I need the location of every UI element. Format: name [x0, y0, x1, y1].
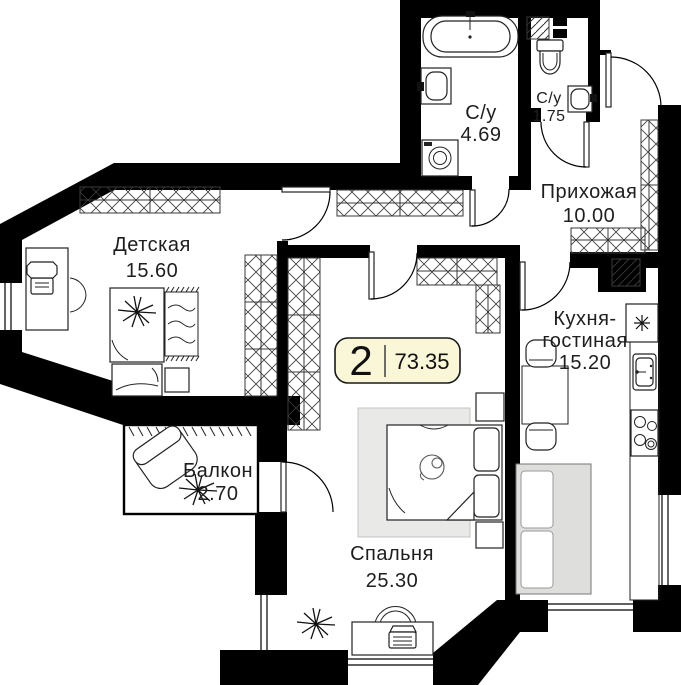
svg-text:15.60: 15.60 [126, 260, 179, 282]
badge-rooms-count: 2 [349, 337, 372, 384]
svg-text:4.69: 4.69 [461, 124, 502, 146]
vent-shaft-bathroom [527, 17, 567, 39]
svg-text:Кухня-: Кухня- [553, 308, 616, 330]
svg-text:С/у: С/у [465, 102, 497, 124]
svg-text:Спальня: Спальня [350, 543, 434, 565]
svg-text:Детская: Детская [113, 234, 191, 256]
room-label-bathroom: С/у 4.69 [461, 102, 502, 146]
door-entrance [606, 53, 661, 107]
bathroom-sink [417, 68, 451, 104]
bathtub [423, 11, 518, 57]
svg-text:2.70: 2.70 [198, 483, 239, 505]
stove [631, 410, 658, 456]
room-label-bedroom: Спальня 25.30 [350, 543, 434, 592]
room-label-wc: С/у 1.75 [532, 90, 565, 125]
sofa [516, 464, 591, 594]
plant-bedroom [297, 608, 335, 639]
wardrobe-bedroom-column [288, 258, 320, 430]
nightstand-bottom [476, 522, 503, 548]
door-wc [541, 122, 589, 167]
bedroom-desk [352, 607, 433, 655]
kitchen-sink [633, 354, 656, 390]
room-label-children: Детская 15.60 [113, 234, 191, 282]
svg-text:15.20: 15.20 [559, 352, 612, 374]
svg-text:С/у: С/у [536, 90, 562, 107]
apartment-badge: 2 73.35 [335, 337, 460, 384]
toilet [537, 40, 563, 74]
door-children [282, 187, 330, 240]
double-bed [387, 425, 502, 520]
children-side-table [165, 368, 189, 392]
cat [420, 455, 444, 480]
door-bathroom [470, 189, 509, 226]
vent-shaft-kitchen [612, 259, 640, 286]
door-bedroom [369, 252, 417, 299]
floor-plan: Детская 15.60 Балкон 2.70 Спальня 25.30 … [0, 0, 681, 685]
window-kitchen-right [658, 495, 681, 585]
children-bed [110, 288, 164, 396]
room-label-kitchen: Кухня- гостиная 15.20 [542, 308, 627, 374]
wardrobe-children-top [80, 187, 220, 213]
window-bedroom-bottom [348, 653, 433, 685]
fridge-icon [626, 304, 658, 342]
chair-bottom [526, 423, 556, 450]
svg-text:Балкон: Балкон [183, 460, 253, 482]
door-kitchen [520, 262, 570, 310]
door-balcony [281, 462, 333, 512]
window-bedroom-left [255, 595, 287, 650]
wardrobe-children-column [245, 255, 277, 396]
wardrobe-hallway-right [641, 120, 658, 250]
room-label-hallway: Прихожая 10.00 [541, 181, 638, 227]
washing-machine [422, 140, 458, 176]
dining-table [522, 366, 568, 424]
wardrobe-hallway-bottom [571, 228, 645, 253]
badge-total-area: 73.35 [394, 349, 449, 374]
wardrobe-bedroom-top [417, 258, 497, 285]
svg-text:Прихожая: Прихожая [541, 181, 638, 203]
children-rug [165, 287, 199, 361]
wardrobe-corridor-top [337, 190, 463, 216]
svg-text:1.75: 1.75 [532, 108, 565, 125]
wardrobe-bedroom-right [476, 285, 500, 333]
nightstand-top [476, 393, 504, 421]
svg-text:10.00: 10.00 [563, 205, 616, 227]
window-kitchen-bottom [548, 600, 633, 632]
children-desk [26, 248, 86, 330]
svg-text:гостиная: гостиная [542, 330, 627, 352]
svg-text:25.30: 25.30 [366, 570, 419, 592]
window-children-left [0, 283, 22, 330]
